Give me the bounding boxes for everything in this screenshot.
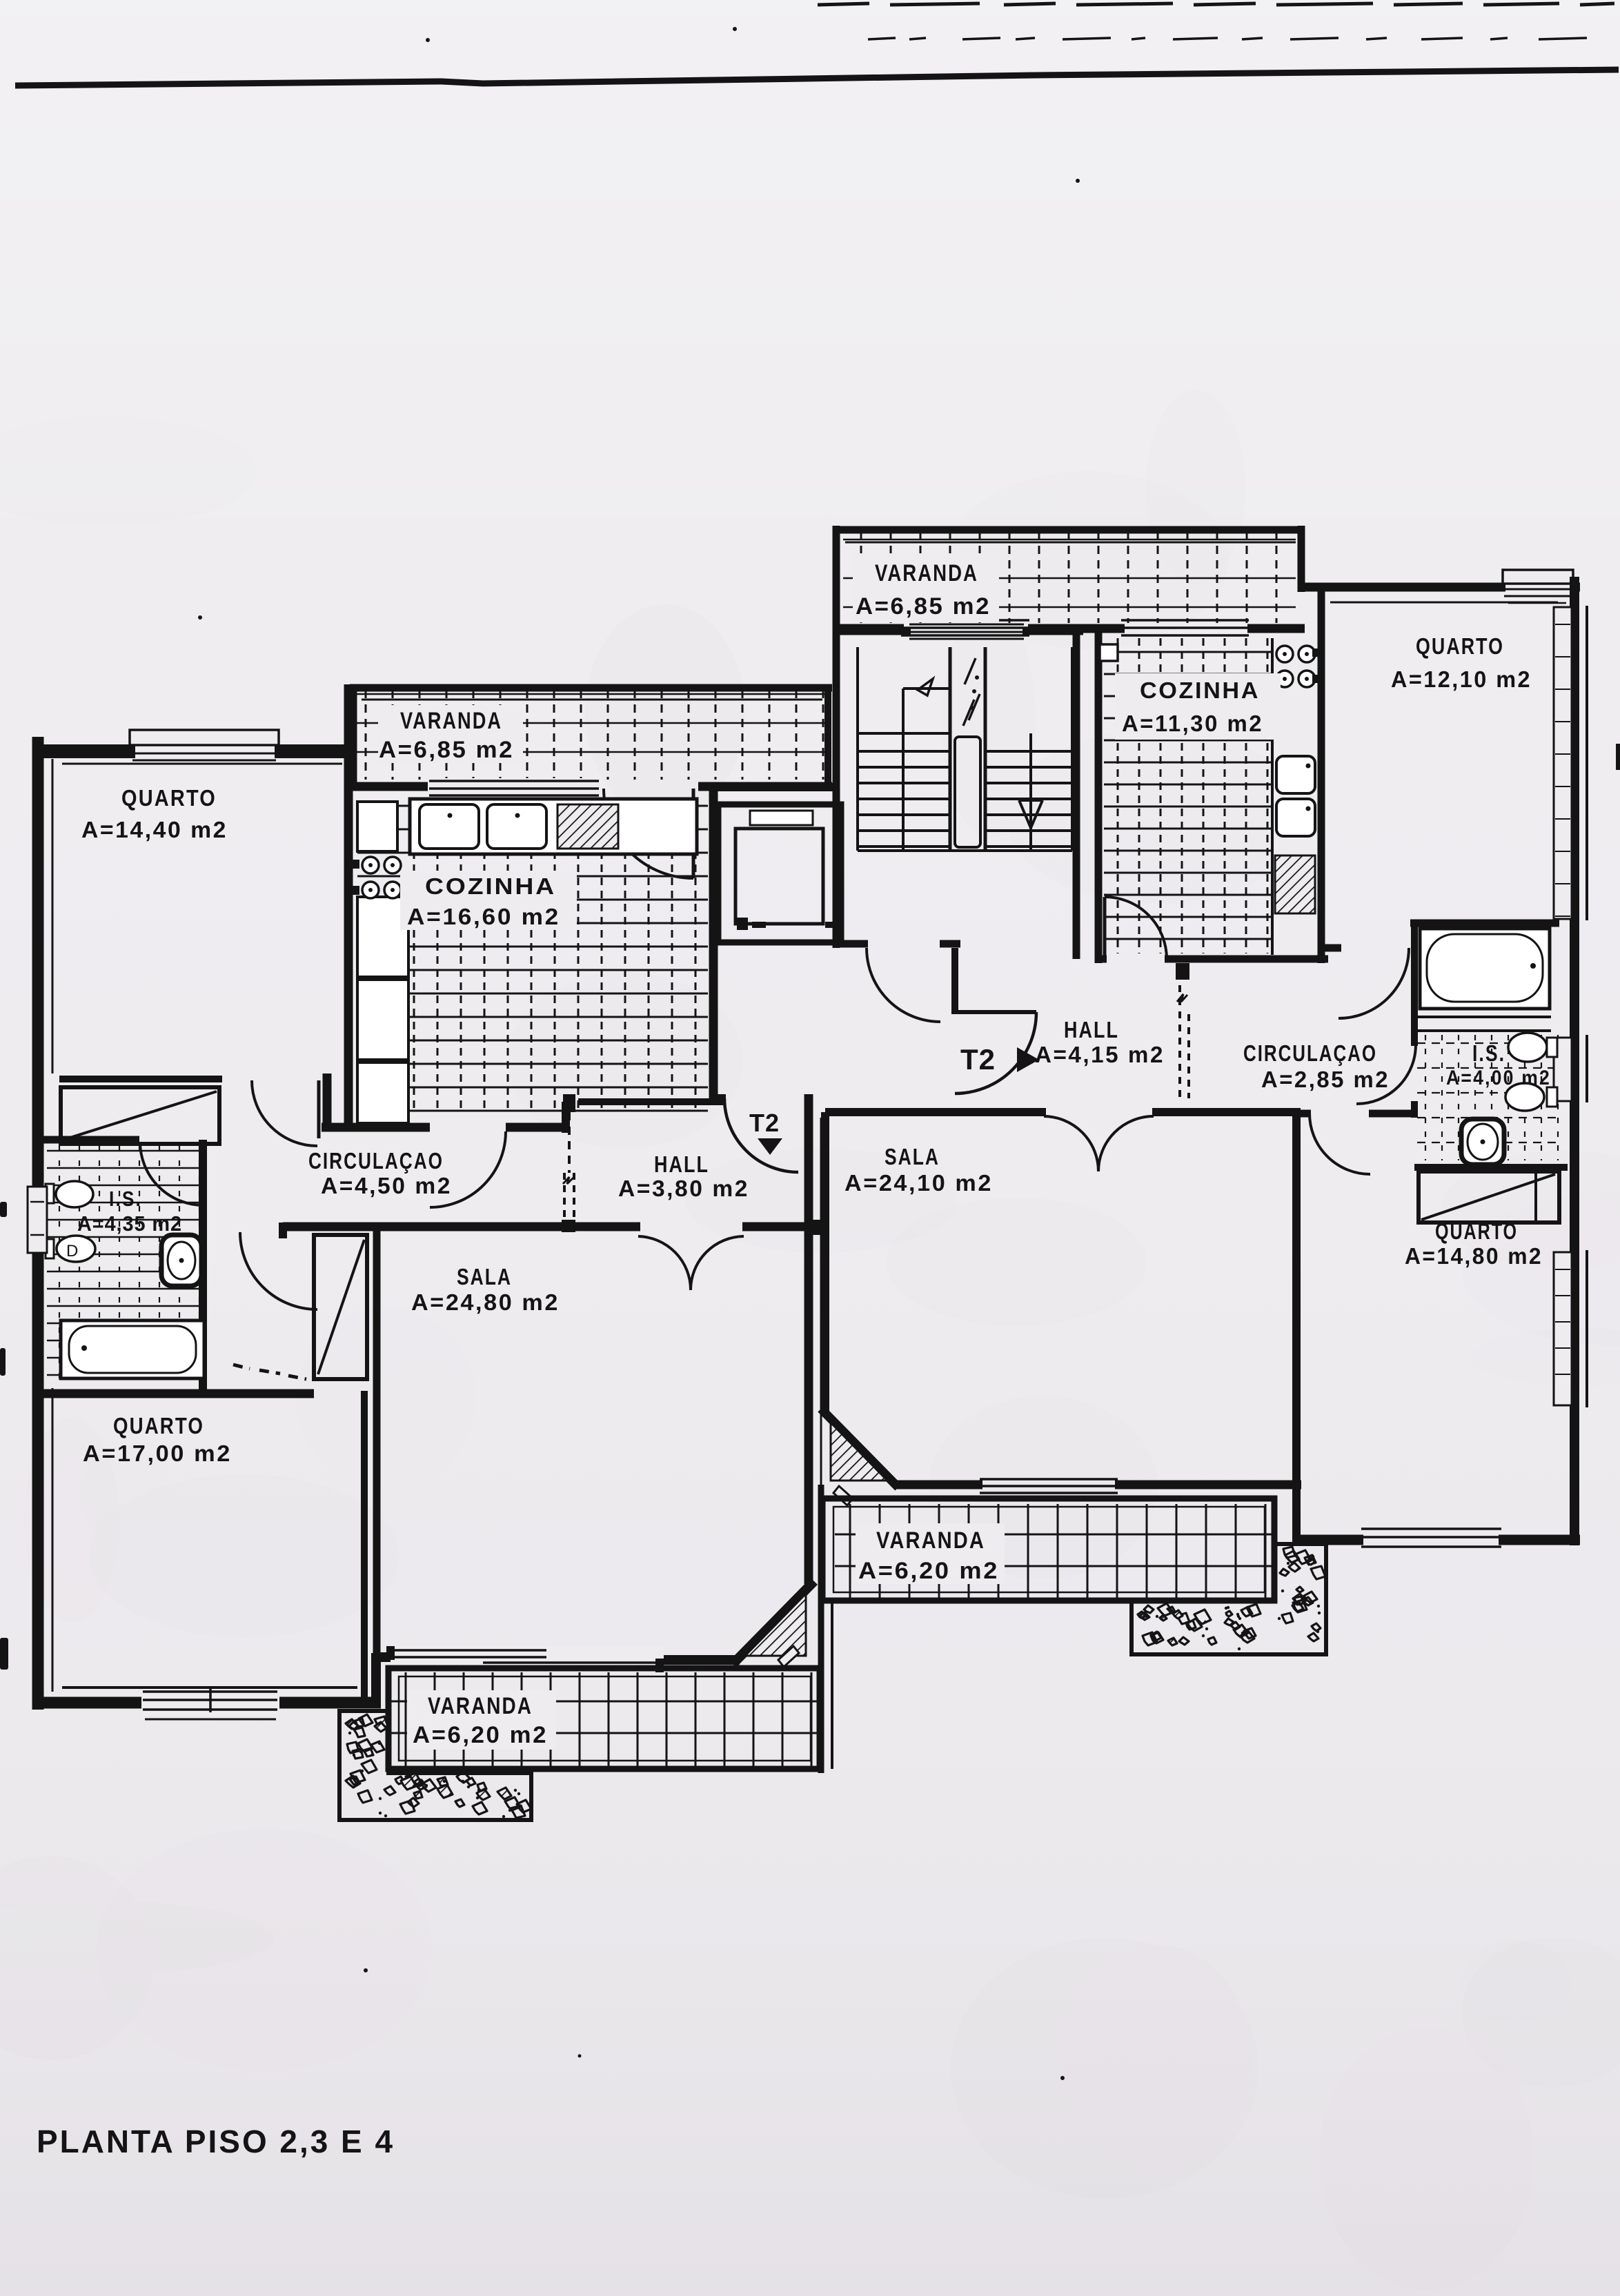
svg-text:A=4,35 m2: A=4,35 m2: [77, 1211, 182, 1236]
svg-text:I.S.: I.S.: [1472, 1040, 1505, 1066]
svg-text:QUARTO: QUARTO: [113, 1413, 204, 1438]
svg-text:A=6,20 m2: A=6,20 m2: [858, 1558, 999, 1584]
svg-text:A=16,60 m2: A=16,60 m2: [407, 904, 560, 929]
svg-text:A=3,80 m2: A=3,80 m2: [618, 1176, 749, 1201]
svg-text:A=11,30 m2: A=11,30 m2: [1122, 711, 1263, 736]
svg-text:VARANDA: VARANDA: [876, 1527, 985, 1554]
svg-text:A=4,15 m2: A=4,15 m2: [1035, 1042, 1165, 1067]
svg-text:VARANDA: VARANDA: [400, 708, 502, 734]
svg-text:QUARTO: QUARTO: [1435, 1218, 1518, 1244]
svg-text:VARANDA: VARANDA: [875, 560, 978, 586]
svg-text:CIRCULAÇAO: CIRCULAÇAO: [308, 1148, 444, 1174]
svg-text:PLANTA PISO 2,3 E 4: PLANTA PISO 2,3 E 4: [37, 2124, 395, 2159]
svg-text:A=4,50 m2: A=4,50 m2: [321, 1173, 452, 1198]
svg-text:SALA: SALA: [885, 1144, 940, 1169]
svg-text:T2: T2: [960, 1043, 996, 1076]
svg-text:D: D: [66, 1242, 78, 1260]
svg-text:A=17,00 m2: A=17,00 m2: [83, 1441, 232, 1466]
svg-text:A=4,00 m2: A=4,00 m2: [1446, 1067, 1551, 1089]
svg-text:QUARTO: QUARTO: [1416, 633, 1504, 659]
svg-text:A=6,20 m2: A=6,20 m2: [413, 1722, 548, 1748]
svg-text:T2: T2: [749, 1109, 780, 1137]
svg-text:A=24,80 m2: A=24,80 m2: [411, 1289, 560, 1315]
svg-text:COZINHA: COZINHA: [425, 873, 556, 899]
svg-text:A=14,80 m2: A=14,80 m2: [1405, 1243, 1543, 1269]
svg-text:A=12,10 m2: A=12,10 m2: [1391, 666, 1532, 692]
svg-text:HALL: HALL: [654, 1151, 709, 1177]
svg-text:QUARTO: QUARTO: [121, 785, 217, 811]
svg-text:VARANDA: VARANDA: [428, 1693, 533, 1719]
svg-text:I.S.: I.S.: [109, 1187, 142, 1211]
svg-text:A=14,40 m2: A=14,40 m2: [81, 817, 228, 842]
svg-text:CIRCULAÇAO: CIRCULAÇAO: [1243, 1040, 1377, 1066]
svg-text:SALA: SALA: [457, 1264, 512, 1289]
svg-text:HALL: HALL: [1064, 1017, 1119, 1042]
svg-text:A=24,10 m2: A=24,10 m2: [844, 1170, 993, 1196]
svg-text:A=6,85 m2: A=6,85 m2: [379, 737, 514, 763]
svg-text:A=6,85 m2: A=6,85 m2: [856, 593, 991, 620]
svg-text:A=2,85 m2: A=2,85 m2: [1261, 1067, 1390, 1092]
svg-text:COZINHA: COZINHA: [1140, 677, 1260, 703]
